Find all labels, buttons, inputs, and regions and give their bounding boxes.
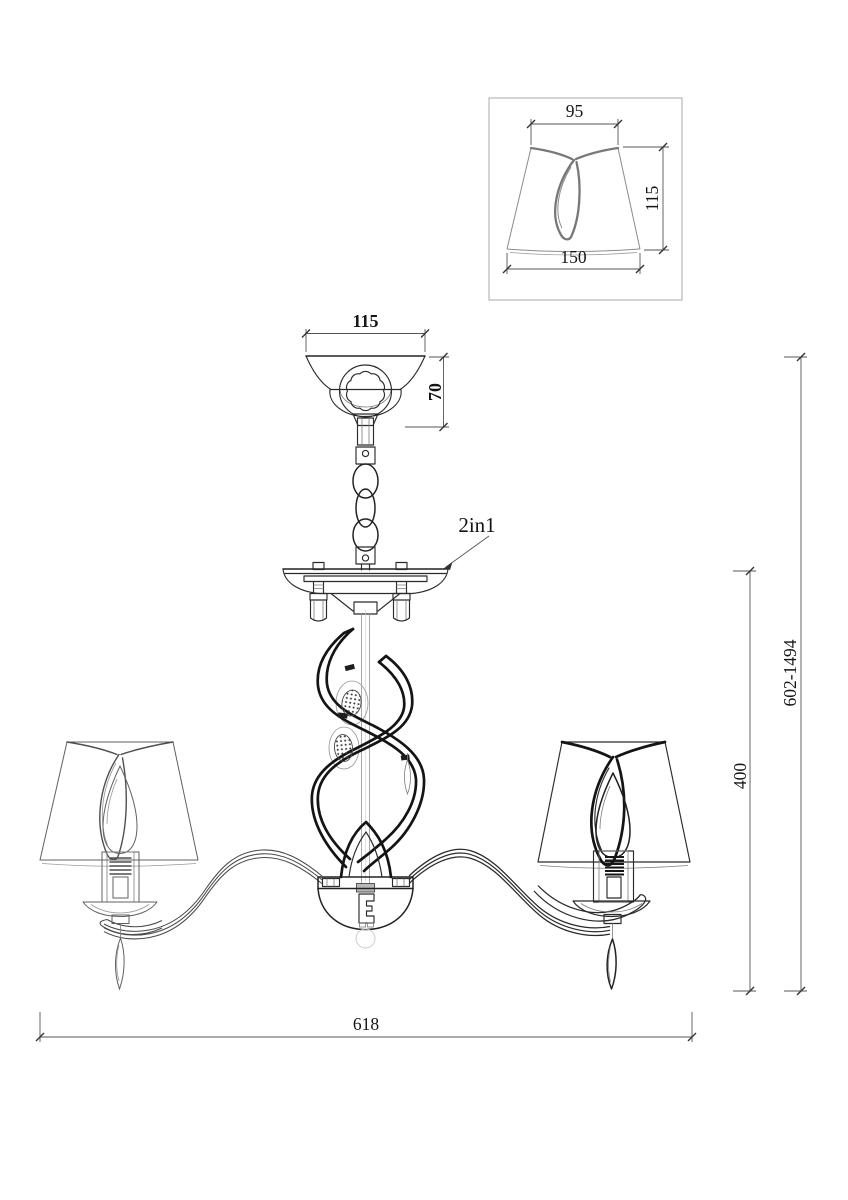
- canopy: 115 70: [302, 311, 449, 464]
- connector-hole: [362, 450, 368, 456]
- hub-tab-right-detail: [397, 879, 404, 887]
- chain-link-3: [353, 519, 378, 551]
- center-column: [312, 610, 424, 884]
- dim-text-total-width: 618: [353, 1014, 380, 1034]
- chain-link-1: [353, 464, 378, 498]
- connector-hole: [362, 555, 368, 561]
- dim-body-height: 400: [730, 567, 756, 995]
- dim-text-canopy-height: 70: [425, 383, 445, 401]
- canopy-stem-lines: [362, 418, 369, 445]
- left-socket-cylinder: [113, 877, 128, 898]
- hub-tab-right: [393, 879, 410, 887]
- dim-text-total-height: 602-1494: [780, 639, 800, 706]
- bolt-left: [310, 563, 327, 622]
- bracket-foot: [368, 923, 374, 927]
- dim-text-canopy-width: 115: [352, 311, 378, 331]
- chandelier-technical-drawing: 95 115 150 115 70: [0, 0, 848, 1200]
- dim-total-width: 618: [36, 1012, 696, 1042]
- left-shade-outline: [40, 742, 198, 860]
- mounting-plate: 2in1: [283, 513, 496, 621]
- inset-shade-top-fold: [531, 148, 618, 159]
- ribbon-clip-1: [345, 664, 355, 671]
- inset-shade-left-edge: [507, 148, 531, 249]
- hub-tab-left-detail: [327, 879, 334, 887]
- hub-tab-left: [323, 879, 340, 887]
- right-lamp: [538, 742, 690, 989]
- dim-text-shade-bottom-width: 150: [560, 247, 587, 267]
- bracket-foot: [360, 923, 366, 927]
- label-leader-line: [446, 536, 489, 567]
- canopy-dim-width: 115: [302, 311, 429, 352]
- left-arm: [100, 850, 322, 939]
- dim-total-height: 602-1494: [780, 353, 807, 995]
- inset-dim-bottom-width: 150: [503, 247, 644, 274]
- chain-top-connector: [356, 447, 375, 464]
- inset-dim-height: 115: [623, 143, 669, 254]
- bolt-right: [393, 563, 410, 622]
- left-saucer: [83, 902, 157, 917]
- adapter-bar: [304, 576, 427, 582]
- hub-bracket: [359, 894, 374, 923]
- adapter-label: 2in1: [444, 513, 496, 570]
- dim-text-shade-height: 115: [642, 185, 662, 211]
- finial-ball-faint: [356, 929, 375, 948]
- dim-text-shade-top-width: 95: [566, 101, 584, 121]
- canopy-dim-height: 70: [405, 353, 449, 431]
- right-socket-cylinder: [607, 877, 621, 898]
- suspension-chain: [353, 464, 378, 570]
- left-lamp: [40, 742, 198, 989]
- canopy-scallop-detail: [347, 371, 385, 410]
- label-2in1-text: 2in1: [458, 513, 495, 537]
- drawing-canvas: 95 115 150 115 70: [0, 0, 848, 1200]
- inset-dim-top-width: 95: [527, 101, 622, 145]
- shade-detail-inset: 95 115 150: [489, 98, 682, 300]
- left-shade-top-fold: [67, 742, 173, 755]
- dim-text-body-height: 400: [730, 763, 750, 790]
- right-shade-top-fold: [562, 742, 665, 757]
- canopy-stem: [358, 418, 374, 445]
- leader-arrowhead: [444, 562, 453, 570]
- inset-shade-right-edge: [618, 148, 640, 249]
- right-shade-loop: [591, 757, 624, 865]
- left-saucer-inner: [91, 905, 149, 914]
- right-shade-outline: [538, 742, 690, 862]
- amber-ornament-2: [333, 734, 354, 763]
